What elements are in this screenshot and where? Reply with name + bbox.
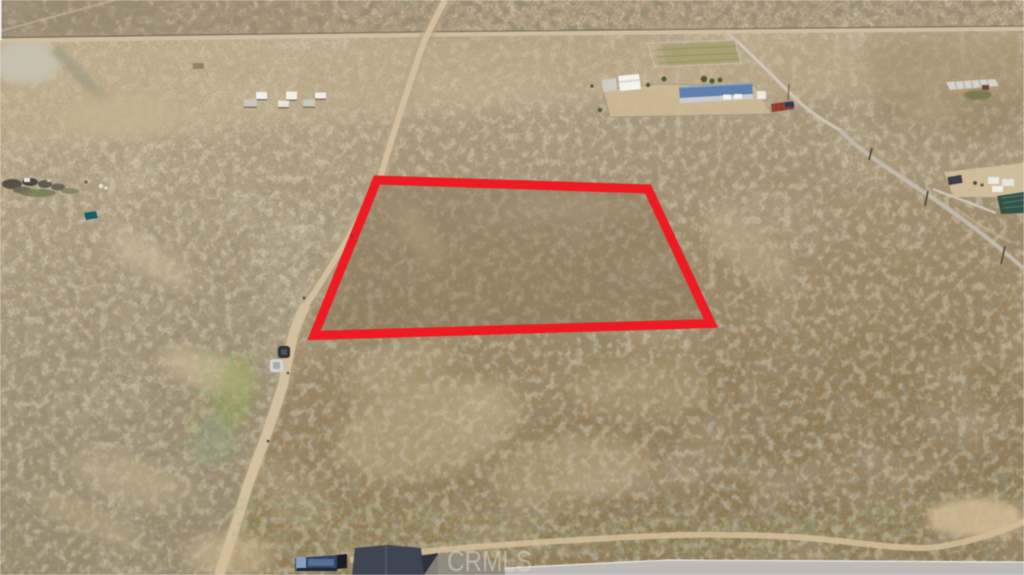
svg-text:CRMLS: CRMLS: [447, 546, 532, 575]
